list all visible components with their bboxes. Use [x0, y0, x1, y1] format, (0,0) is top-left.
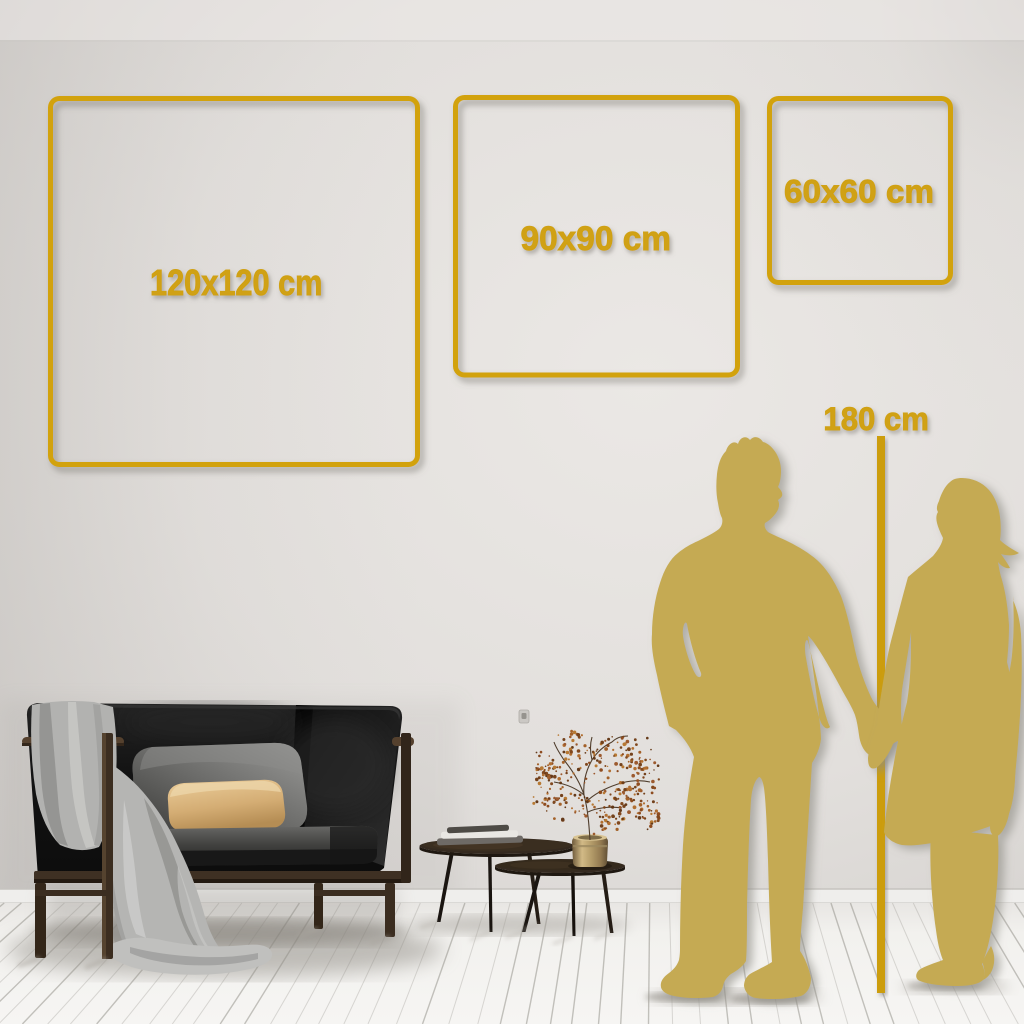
svg-text:60x60 cm: 60x60 cm	[784, 173, 934, 209]
svg-text:120x120 cm: 120x120 cm	[150, 262, 323, 303]
svg-text:180 cm: 180 cm	[823, 401, 929, 437]
svg-text:90x90 cm: 90x90 cm	[521, 220, 672, 258]
